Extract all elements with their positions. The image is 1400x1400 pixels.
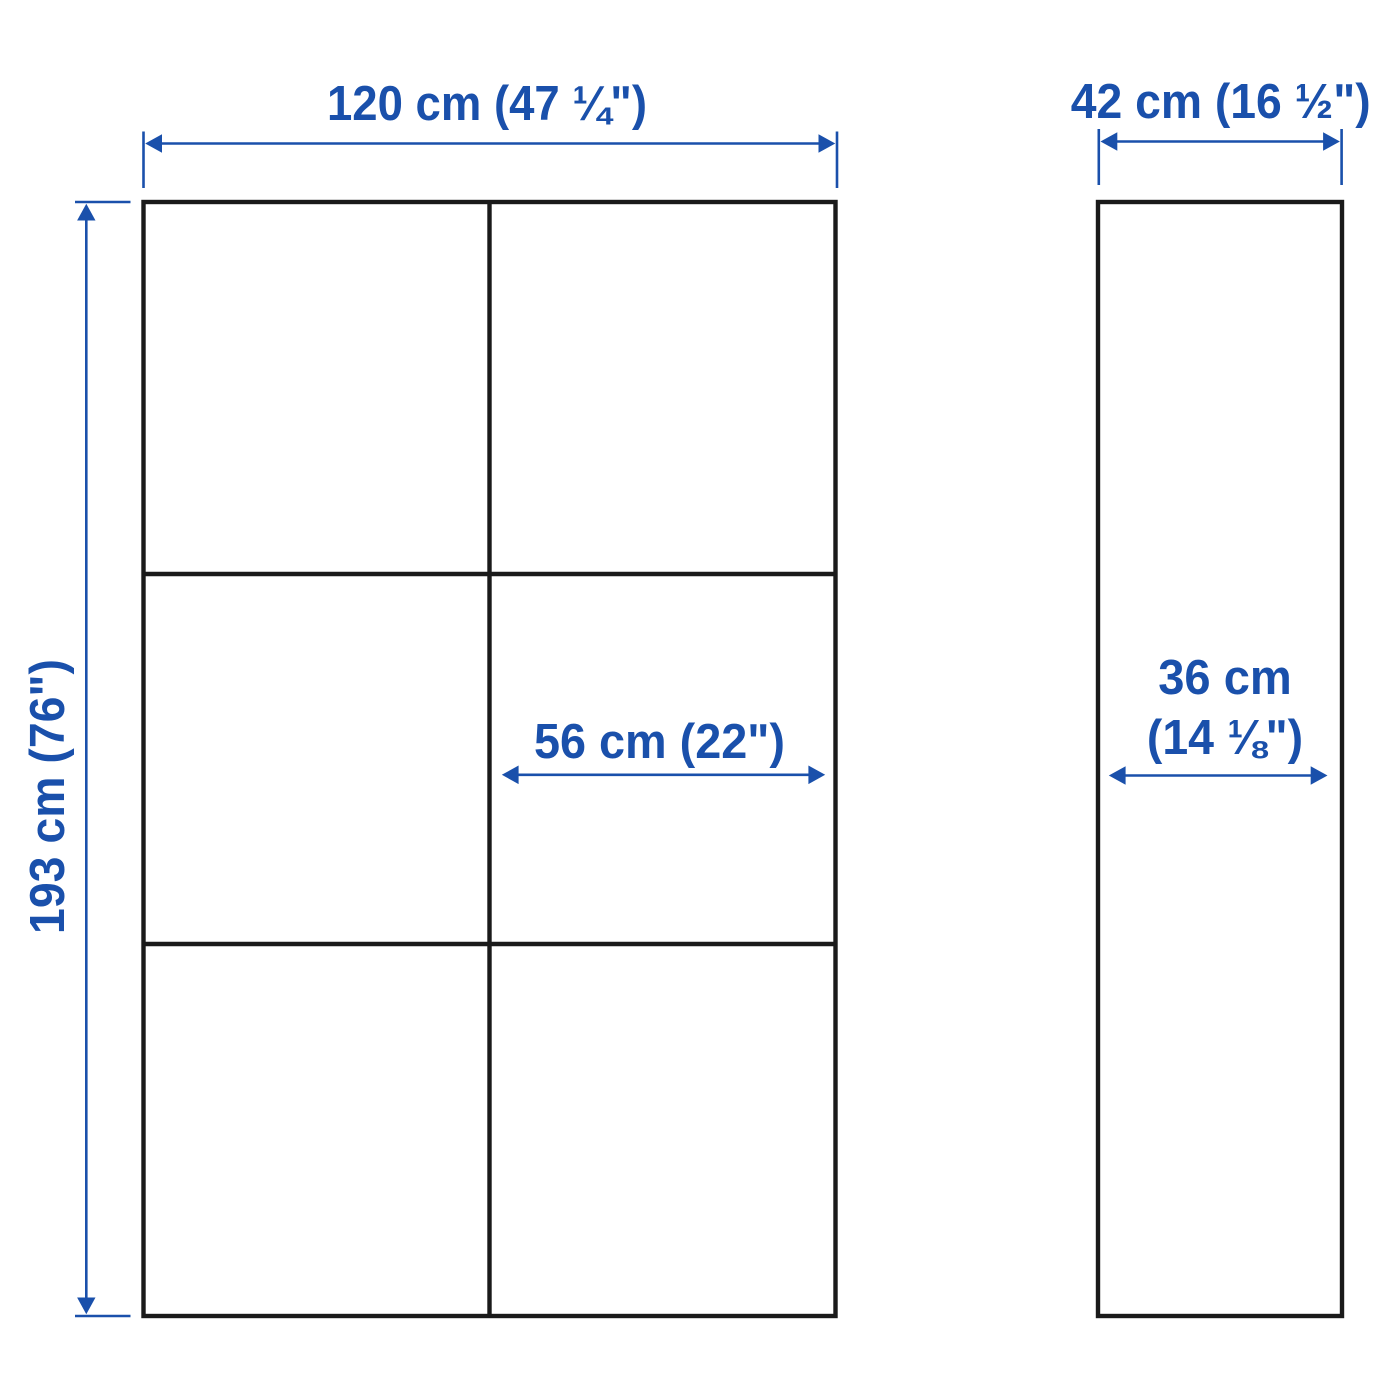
svg-text:193 cm (76"): 193 cm (76") <box>20 659 75 934</box>
svg-text:36 cm: 36 cm <box>1158 650 1292 705</box>
svg-text:120 cm (47 ¼"): 120 cm (47 ¼") <box>327 76 647 131</box>
svg-text:42 cm (16 ½"): 42 cm (16 ½") <box>1071 74 1371 129</box>
svg-text:56 cm (22"): 56 cm (22") <box>534 714 785 769</box>
svg-text:(14 ⅛"): (14 ⅛") <box>1147 710 1303 765</box>
